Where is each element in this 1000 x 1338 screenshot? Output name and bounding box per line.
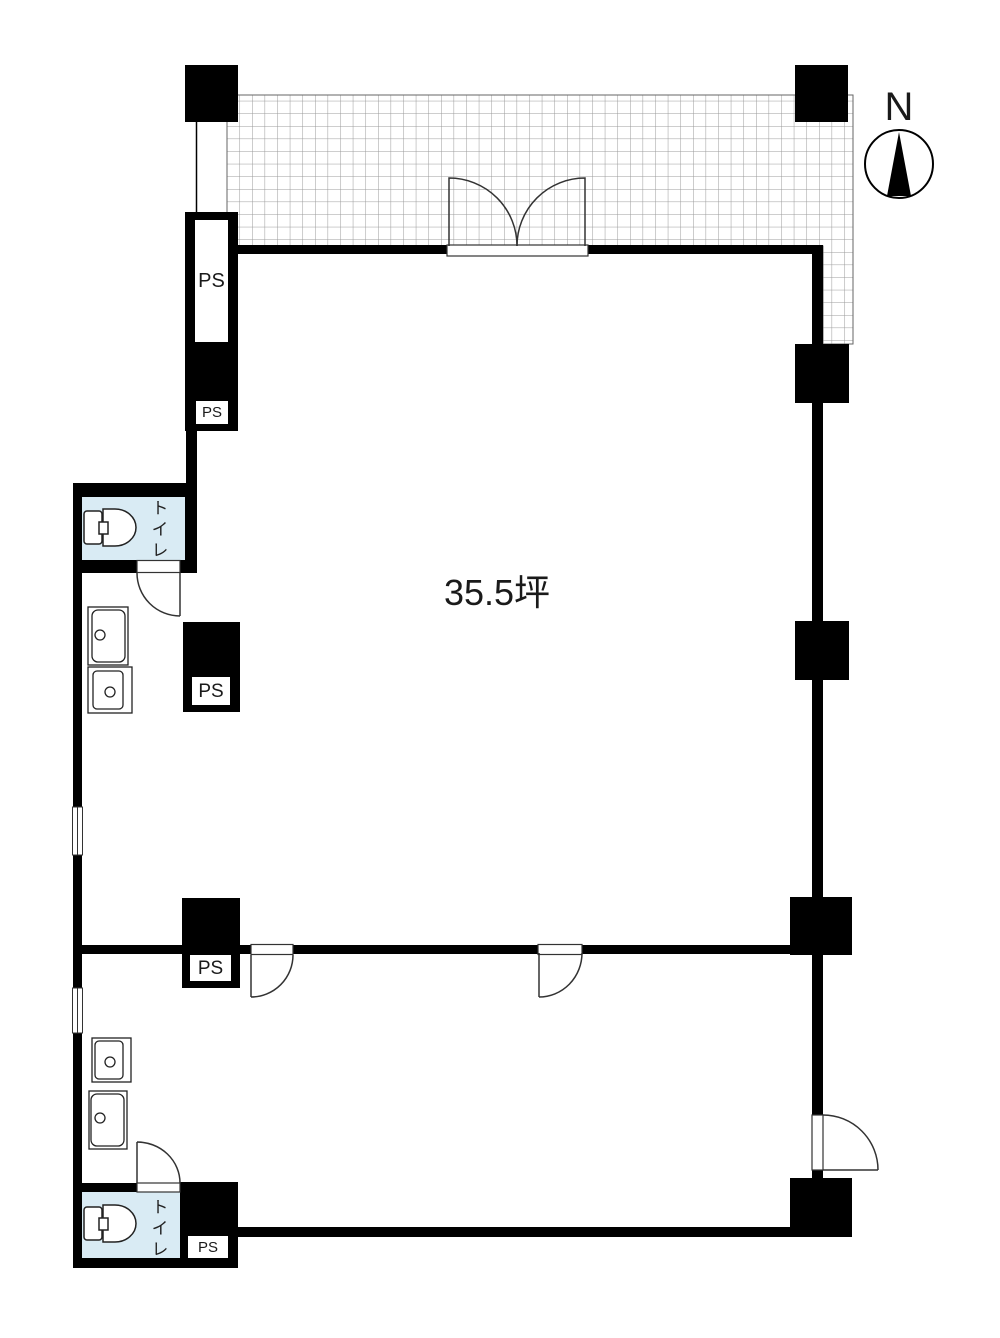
toilet-lower-door-sill <box>137 1183 180 1192</box>
sink-icon-upper-2 <box>88 667 132 713</box>
toilet-icon-upper <box>84 509 136 546</box>
ps-label-4: PS <box>190 955 231 981</box>
ps-label-5: PS <box>188 1236 228 1258</box>
door-swing-icon-toilet-lower <box>137 1142 180 1183</box>
column-top-left <box>185 65 238 122</box>
window-icon-2 <box>73 988 83 1033</box>
sink-icon-upper-1 <box>88 607 128 665</box>
double-door-sill <box>447 245 588 256</box>
floor-plan-drawing <box>0 0 1000 1338</box>
north-compass-icon <box>865 130 933 198</box>
column-top-right <box>795 65 848 122</box>
door-swing-icon-right-exterior <box>823 1115 878 1170</box>
door-swing-icon-toilet-upper <box>137 573 180 616</box>
column-right-3 <box>795 621 849 680</box>
ps-label-3: PS <box>192 677 230 705</box>
door-swing-icon-mid-center <box>539 953 582 997</box>
mid-center-door-sill <box>538 945 582 955</box>
toilet-upper-label: トイレ <box>146 494 170 566</box>
right-exterior-door-leaf <box>812 1115 823 1170</box>
toilet-lower-label: トイレ <box>146 1193 170 1265</box>
mid-left-door-sill <box>251 945 293 955</box>
column-right-2 <box>795 344 849 403</box>
ps-label-1: PS <box>195 220 228 342</box>
toilet-icon-lower <box>84 1205 136 1242</box>
ps-label-2: PS <box>196 401 228 424</box>
balcony-hatch <box>227 95 853 344</box>
sink-icon-lower-2 <box>89 1091 127 1149</box>
floor-plan-canvas: N 35.5坪 PS PS PS PS PS トイレ トイレ <box>0 0 1000 1338</box>
area-label: 35.5坪 <box>377 570 617 616</box>
north-label: N <box>871 84 927 130</box>
column-bottom-right <box>790 1178 852 1237</box>
window-icon-1 <box>73 807 83 855</box>
sink-icon-lower-1 <box>92 1038 131 1082</box>
door-swing-icon-mid-left <box>251 955 293 997</box>
